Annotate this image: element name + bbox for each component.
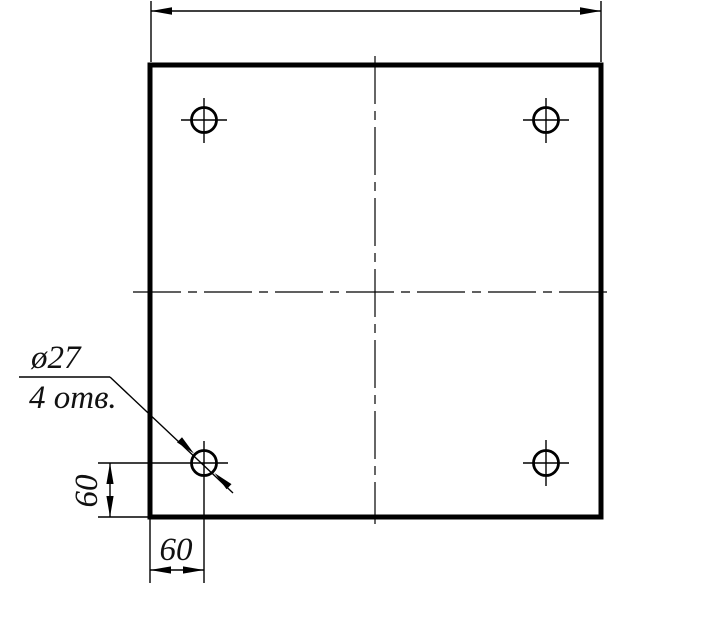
horizontal-offset-dimension: 60	[150, 519, 204, 583]
vertical-offset-dimension: 60	[69, 463, 148, 517]
horizontal-offset-value: 60	[160, 532, 194, 568]
leader-line	[110, 377, 233, 493]
hole-bottom-right	[523, 440, 569, 486]
arrowhead-up	[106, 463, 113, 484]
width-dimension	[151, 1, 601, 62]
arrowhead-right	[580, 7, 601, 15]
callout-count-text: 4 отв.	[29, 380, 117, 416]
vertical-offset-value: 60	[69, 474, 105, 508]
diameter-callout: ø27 4 отв.	[19, 340, 233, 493]
hole-top-right	[523, 98, 569, 143]
leader-arrowhead-lower	[215, 473, 232, 489]
callout-diameter-text: ø27	[30, 340, 82, 376]
drawing-canvas: 60 60 ø27 4 отв.	[0, 0, 713, 631]
technical-drawing: 60 60 ø27 4 отв.	[0, 0, 713, 631]
arrowhead-down	[106, 496, 113, 517]
hole-top-left	[181, 98, 227, 143]
leader-arrowhead-upper	[177, 437, 194, 453]
arrowhead-left	[151, 7, 172, 15]
